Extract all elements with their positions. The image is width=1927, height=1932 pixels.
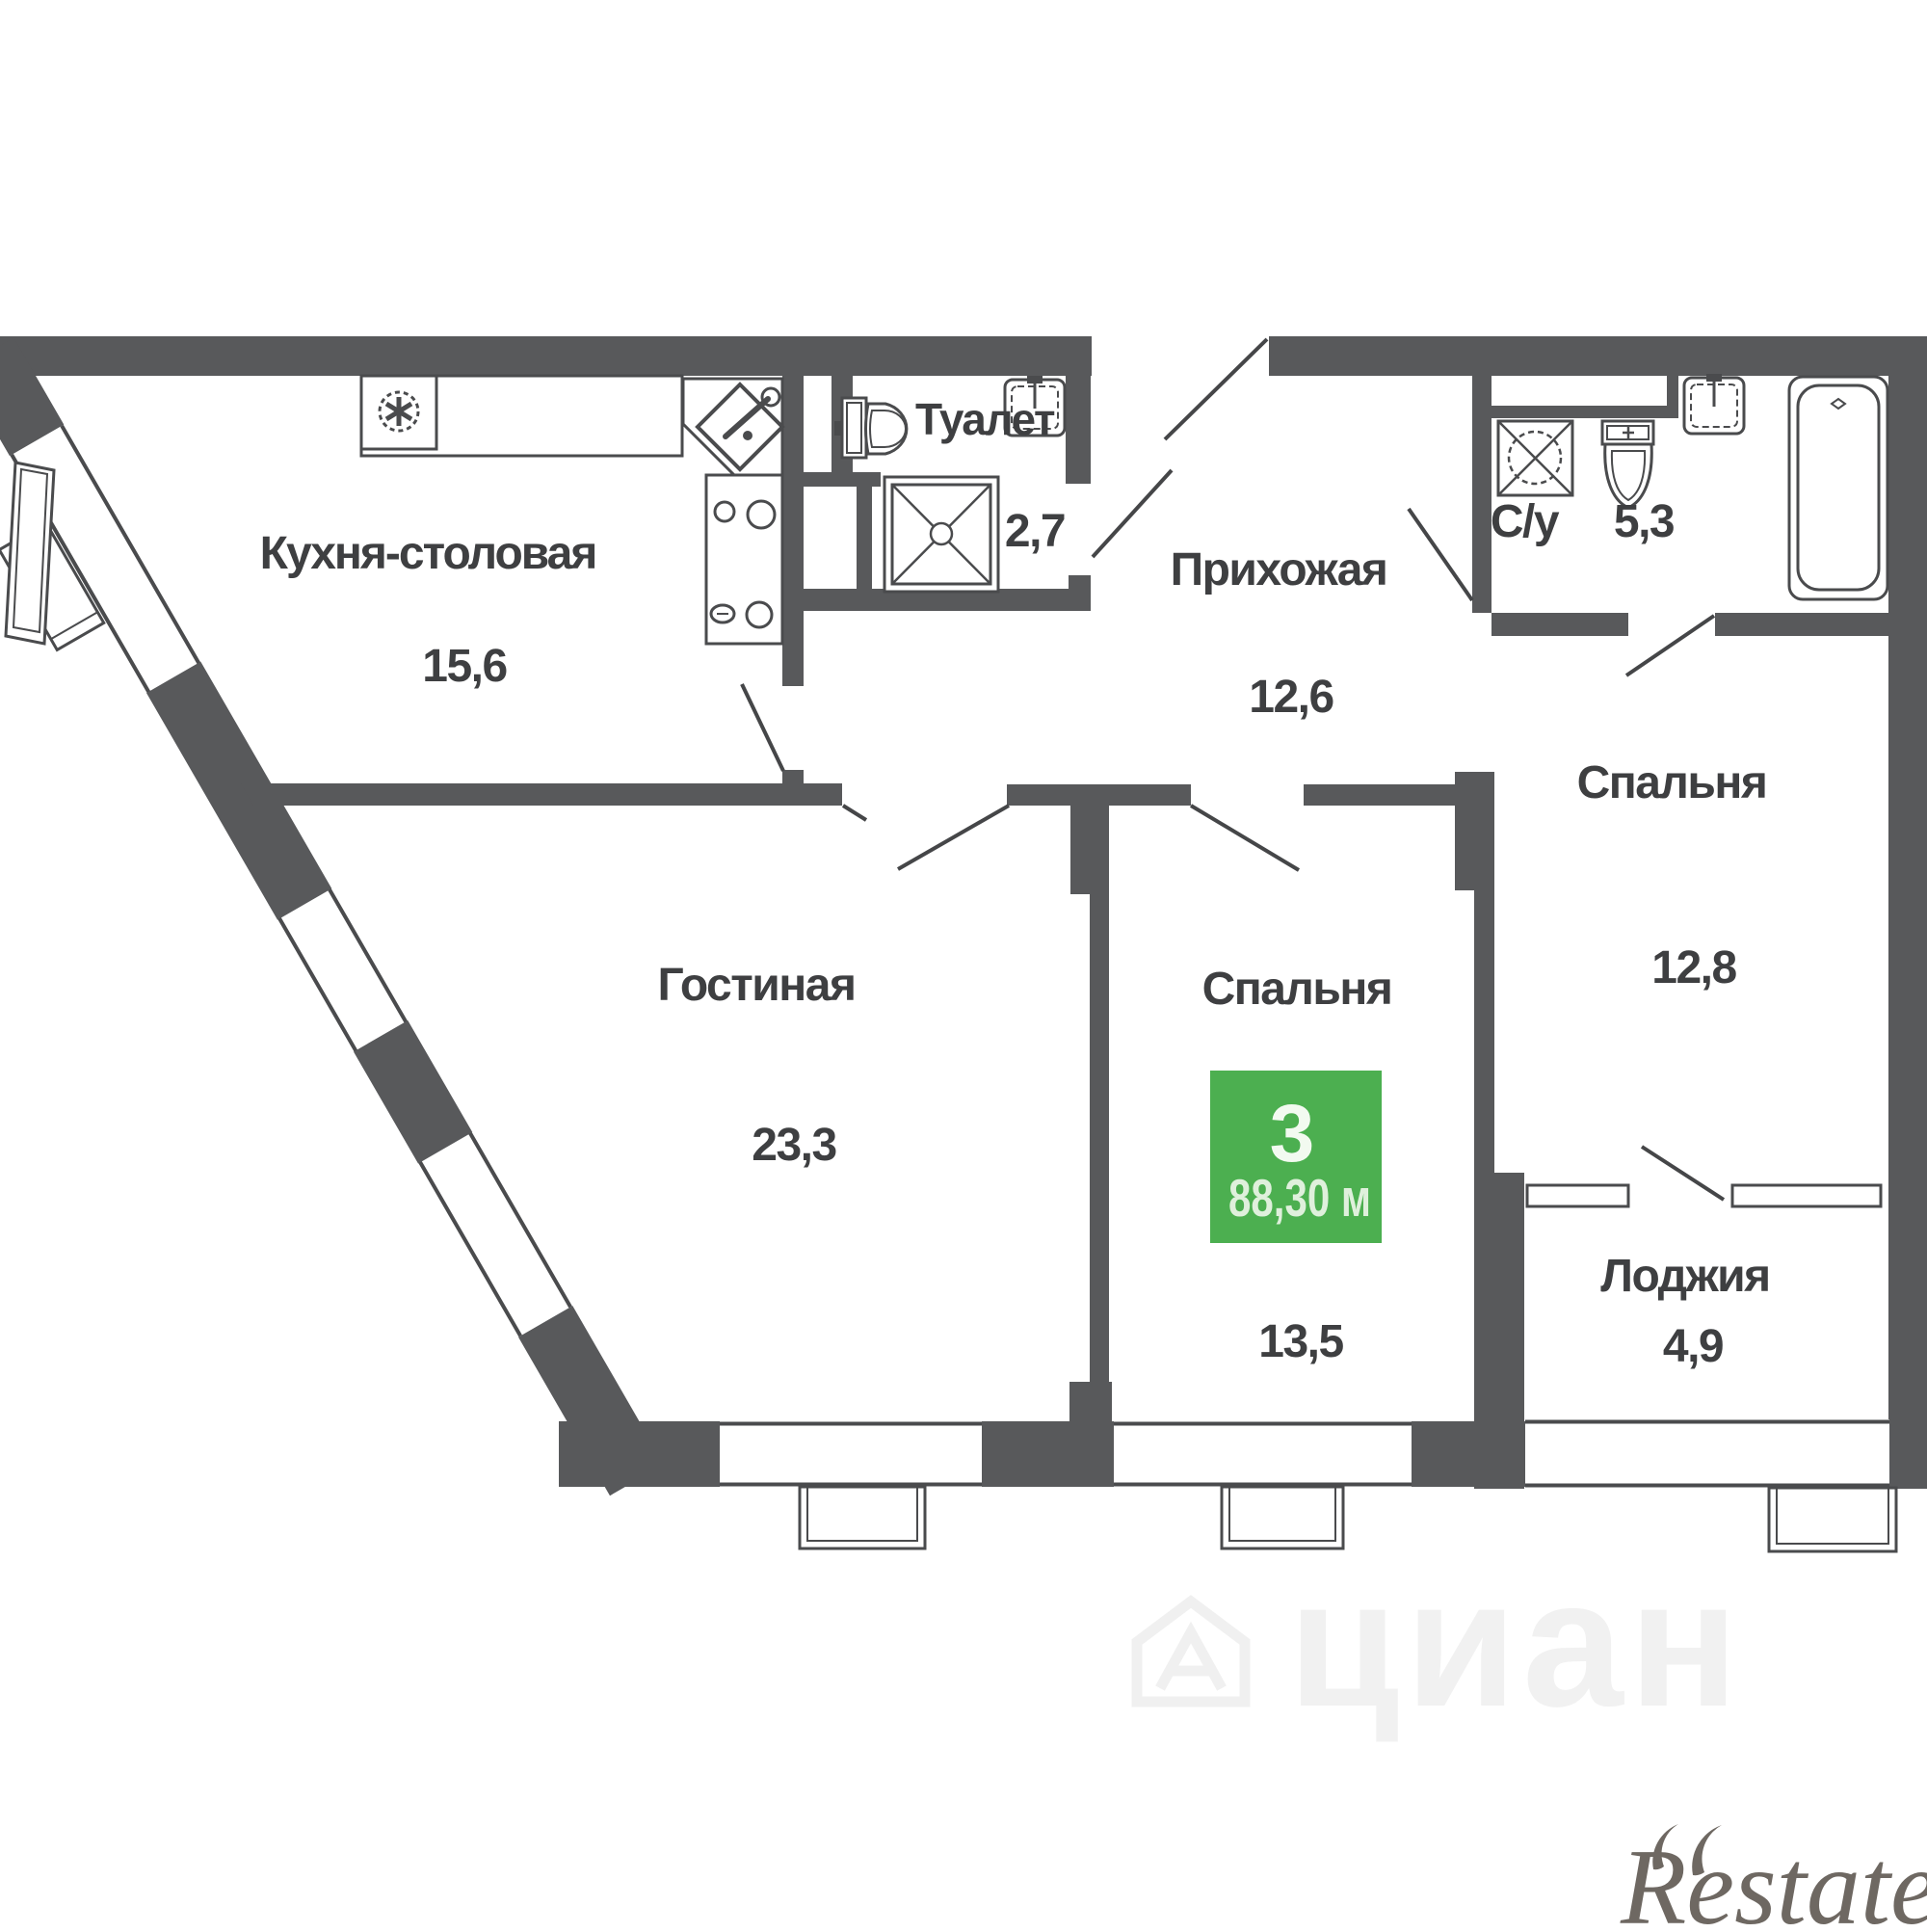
svg-text:15,6: 15,6 [422, 641, 506, 692]
svg-text:Гостиная: Гостиная [658, 960, 856, 1011]
svg-text:88,30 м: 88,30 м [1228, 1168, 1371, 1228]
svg-text:С/у: С/у [1491, 496, 1560, 547]
svg-text:циан: циан [1288, 1542, 1744, 1744]
svg-text:Спальня: Спальня [1577, 757, 1767, 808]
svg-text:23,3: 23,3 [752, 1120, 835, 1171]
svg-text:13,5: 13,5 [1258, 1316, 1343, 1367]
svg-text:2,7: 2,7 [1005, 506, 1065, 557]
svg-text:4,9: 4,9 [1663, 1321, 1723, 1372]
svg-text:12,6: 12,6 [1249, 672, 1333, 723]
svg-text:Прихожая: Прихожая [1171, 544, 1387, 595]
svg-text:Спальня: Спальня [1202, 964, 1392, 1015]
svg-text:Лоджия: Лоджия [1600, 1251, 1769, 1302]
svg-text:5,3: 5,3 [1614, 496, 1674, 547]
svg-text:12,8: 12,8 [1651, 942, 1736, 993]
svg-text:3: 3 [1270, 1088, 1315, 1178]
svg-text:Restate: Restate [1620, 1828, 1927, 1927]
svg-text:Туалет: Туалет [915, 394, 1055, 444]
svg-text:Кухня-столовая: Кухня-столовая [260, 528, 596, 579]
